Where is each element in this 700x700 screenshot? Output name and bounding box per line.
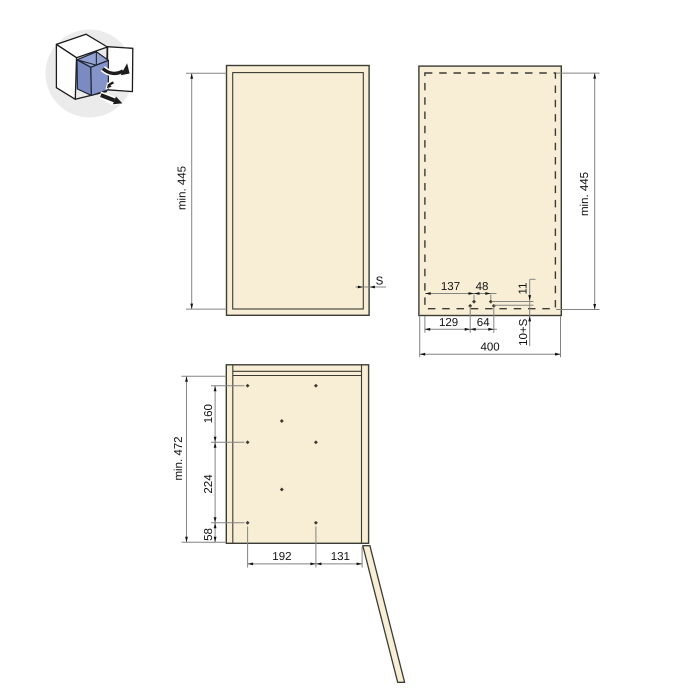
svg-text:11: 11 — [517, 283, 529, 295]
svg-text:S: S — [376, 275, 384, 287]
svg-text:400: 400 — [481, 342, 500, 354]
svg-text:48: 48 — [476, 281, 489, 293]
svg-text:224: 224 — [203, 474, 215, 494]
svg-text:min. 445: min. 445 — [579, 172, 591, 216]
svg-text:129: 129 — [439, 317, 458, 329]
svg-text:131: 131 — [331, 551, 350, 563]
svg-text:58: 58 — [203, 528, 215, 541]
svg-text:64: 64 — [477, 317, 490, 329]
svg-text:10+S: 10+S — [518, 318, 530, 346]
svg-text:160: 160 — [203, 404, 215, 423]
svg-text:min. 445: min. 445 — [177, 166, 189, 210]
svg-text:137: 137 — [441, 281, 460, 293]
svg-text:192: 192 — [272, 551, 291, 563]
svg-text:min. 472: min. 472 — [173, 436, 185, 480]
